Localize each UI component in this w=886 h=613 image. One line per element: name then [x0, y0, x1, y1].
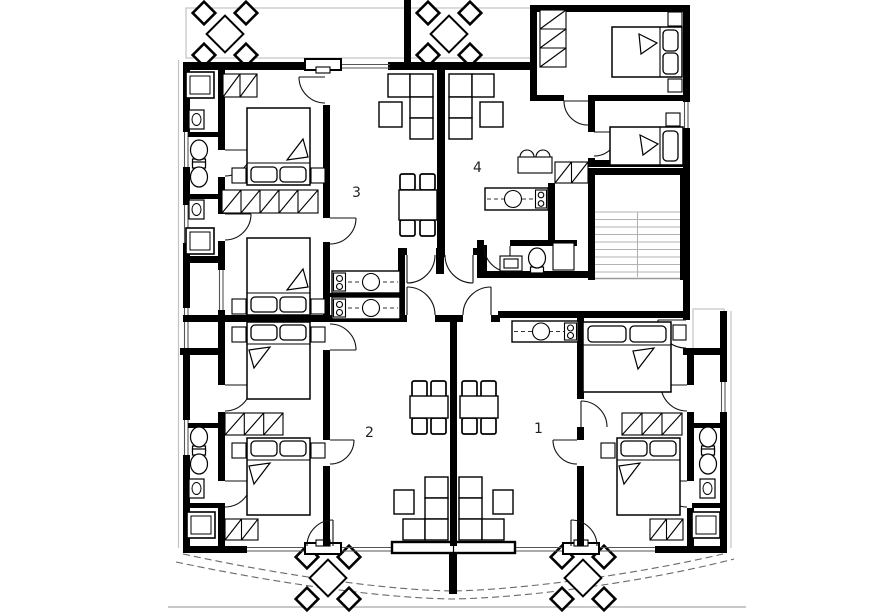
patio-set-icon — [296, 546, 361, 611]
washbasin-icon — [189, 479, 204, 498]
shower-icon — [187, 512, 215, 538]
washbasin-icon — [189, 110, 204, 129]
washbasin-icon — [700, 479, 715, 498]
bed-icon — [247, 108, 310, 185]
wardrobe-hatch-icon — [225, 413, 283, 435]
unit-label-1: 1 — [534, 421, 543, 437]
toilet-icon — [191, 140, 208, 165]
shower-cabin — [553, 243, 574, 270]
bed-icon — [247, 238, 310, 315]
balcony-divider-wall — [404, 0, 411, 62]
unit-label-2: 2 — [365, 425, 374, 441]
wardrobe-hatch-icon — [225, 519, 258, 540]
patio-set-icon — [551, 546, 616, 611]
wardrobe-hatch-icon — [222, 190, 318, 213]
bed-icon — [247, 438, 310, 515]
wardrobe-hatch-icon — [650, 519, 683, 540]
armchair — [480, 102, 503, 127]
washing-machine — [500, 256, 522, 271]
wardrobe-hatch-icon — [555, 162, 588, 183]
bed-icon — [610, 127, 683, 165]
kitchen-counter — [485, 188, 548, 210]
bed-icon — [583, 322, 671, 392]
bed-icon — [612, 27, 682, 77]
kitchen-counter — [512, 321, 578, 342]
shower-icon — [692, 512, 720, 538]
terrace-divider-wall — [449, 550, 457, 594]
washbasin-icon — [189, 200, 204, 219]
toilet-icon — [700, 427, 717, 452]
shower-icon — [186, 228, 214, 254]
patio-set-icon — [417, 2, 482, 67]
wardrobe-hatch-icon — [622, 413, 682, 435]
toilet-icon — [529, 248, 546, 273]
sink-circle-icon — [363, 300, 380, 317]
kitchen-counter — [332, 297, 400, 319]
wardrobe-hatch-icon — [540, 10, 566, 67]
armchair — [394, 490, 414, 514]
armchair — [379, 102, 402, 127]
shower-icon — [186, 72, 214, 98]
unit-label-3: 3 — [352, 185, 361, 201]
armchair — [493, 490, 513, 514]
sink-circle-icon — [363, 274, 380, 291]
bed-icon — [617, 438, 680, 515]
floor-plan-page: 1 2 3 4 — [0, 0, 886, 613]
toilet-icon — [700, 449, 717, 474]
bed-icon — [247, 322, 310, 399]
unit-label-4: 4 — [473, 160, 482, 176]
patio-set-icon — [193, 2, 258, 67]
toilet-icon — [191, 162, 208, 187]
toilet-icon — [191, 449, 208, 474]
toilet-icon — [191, 427, 208, 452]
wardrobe-hatch-icon — [223, 74, 257, 97]
sink-circle-icon — [505, 191, 522, 208]
floor-plan-drawing: 1 2 3 4 — [0, 0, 886, 613]
sink-circle-icon — [533, 323, 550, 340]
kitchen-counter — [332, 271, 400, 293]
